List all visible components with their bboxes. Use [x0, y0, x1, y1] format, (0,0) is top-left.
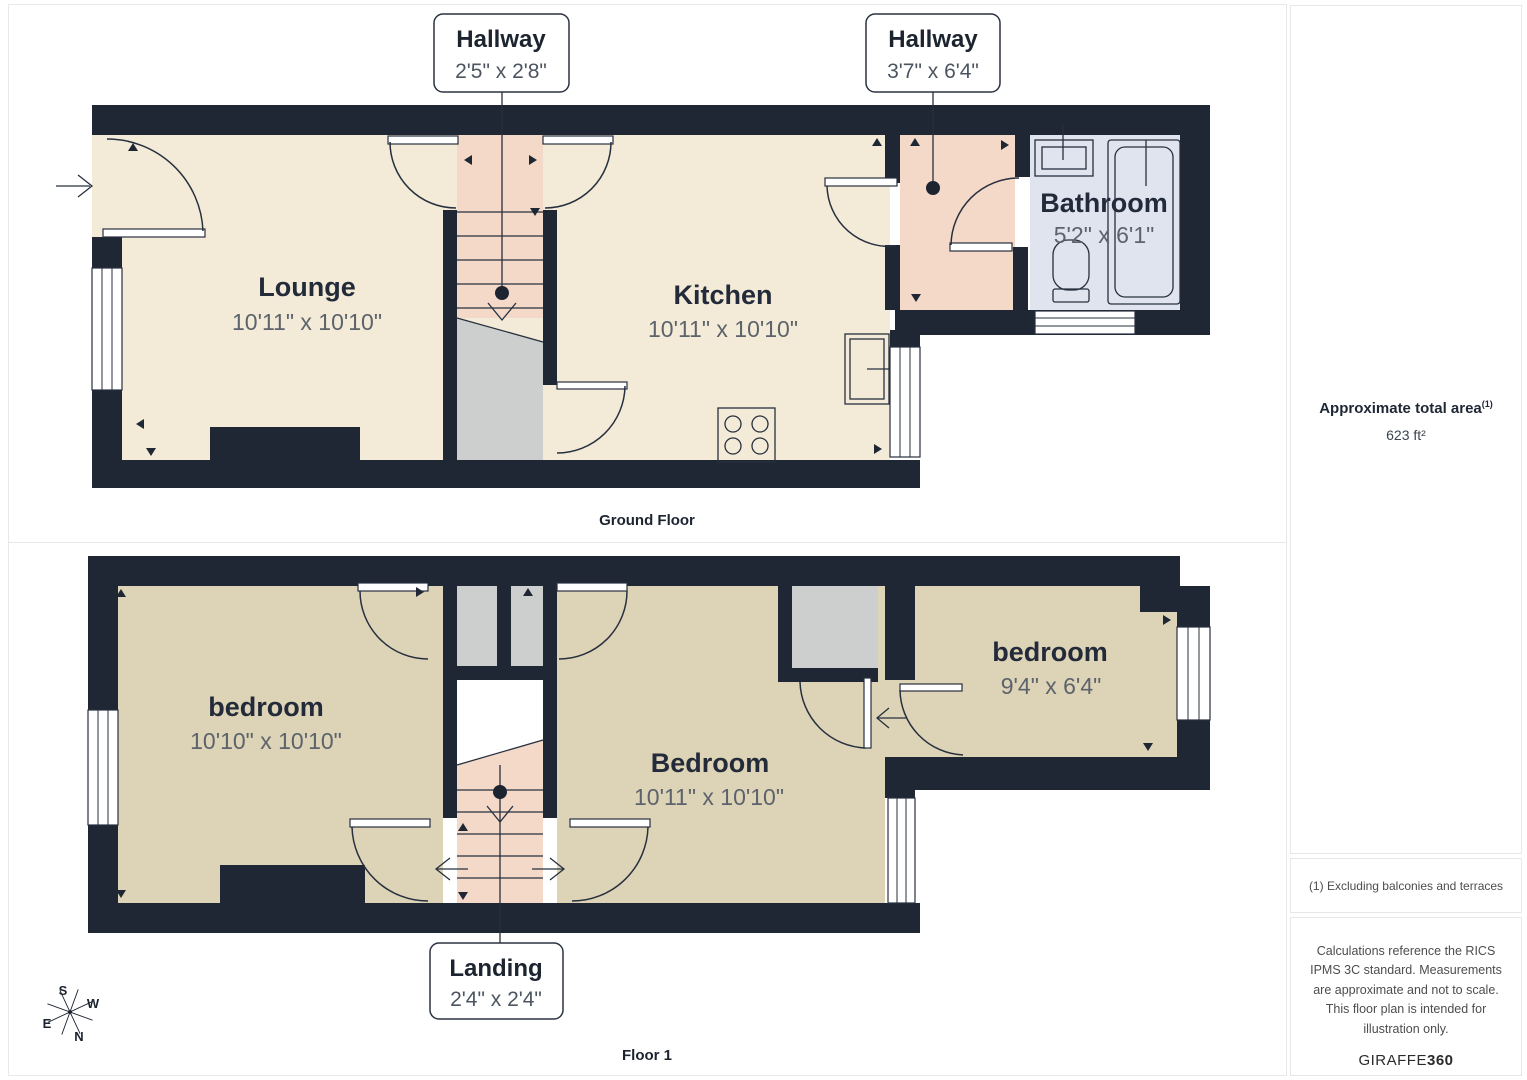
compass-east-label: E	[43, 1016, 52, 1031]
sidebar-disclaimer-panel: Calculations reference the RICS IPMS 3C …	[1290, 917, 1522, 1076]
callout-hallway-1: Hallway 2'5" x 2'8"	[434, 14, 569, 92]
compass-north-label: N	[74, 1029, 83, 1044]
callout-landing-dims: 2'4" x 2'4"	[450, 988, 542, 1011]
giraffe360-logo: GIRAFFE360	[1291, 1052, 1521, 1069]
room-label-kitchen: Kitchen	[673, 280, 772, 310]
disclaimer-text: Calculations reference the RICS IPMS 3C …	[1291, 918, 1521, 1039]
total-area-title: Approximate total area(1)	[1291, 6, 1521, 417]
callout-hallway-1-dims: 2'5" x 2'8"	[455, 60, 547, 83]
brand-name-text: GIRAFFE	[1358, 1052, 1427, 1069]
callout-hallway-2: Hallway 3'7" x 6'4"	[866, 14, 1000, 92]
room-dims-kitchen: 10'11" x 10'10"	[648, 316, 798, 342]
compass-south-label: S	[59, 983, 68, 998]
footnote-text: (1) Excluding balconies and terraces	[1309, 879, 1503, 893]
callout-hallway-1-name: Hallway	[456, 26, 546, 53]
callout-landing: Landing 2'4" x 2'4"	[430, 943, 563, 1019]
sidebar-area-panel: Approximate total area(1) 623 ft²	[1290, 5, 1522, 854]
total-area-value: 623 ft²	[1291, 427, 1521, 443]
room-label-bathroom: Bathroom	[1040, 188, 1168, 218]
total-area-footnote-ref: (1)	[1482, 399, 1493, 409]
room-dims-bathroom: 5'2" x 6'1"	[1054, 222, 1155, 248]
total-area-title-text: Approximate total area	[1319, 400, 1482, 417]
callout-hallway-2-name: Hallway	[888, 26, 978, 53]
room-label-bedroom-2: Bedroom	[651, 748, 770, 778]
compass-west-label: W	[87, 996, 100, 1011]
room-dims-lounge: 10'11" x 10'10"	[232, 309, 382, 335]
room-dims-bedroom-1: 10'10" x 10'10"	[190, 728, 342, 754]
ground-floor-caption: Ground Floor	[599, 512, 695, 529]
brand-suffix-text: 360	[1427, 1052, 1454, 1069]
callout-landing-name: Landing	[449, 955, 542, 982]
room-label-bedroom-3: bedroom	[992, 637, 1108, 667]
callout-hallway-2-dims: 3'7" x 6'4"	[887, 60, 979, 83]
room-dims-bedroom-2: 10'11" x 10'10"	[634, 784, 784, 810]
first-floor-caption: Floor 1	[622, 1047, 672, 1064]
room-dims-bedroom-3: 9'4" x 6'4"	[1001, 673, 1102, 699]
room-label-bedroom-1: bedroom	[208, 692, 324, 722]
room-label-lounge: Lounge	[258, 272, 355, 302]
sidebar-footnote-panel: (1) Excluding balconies and terraces	[1290, 858, 1522, 913]
